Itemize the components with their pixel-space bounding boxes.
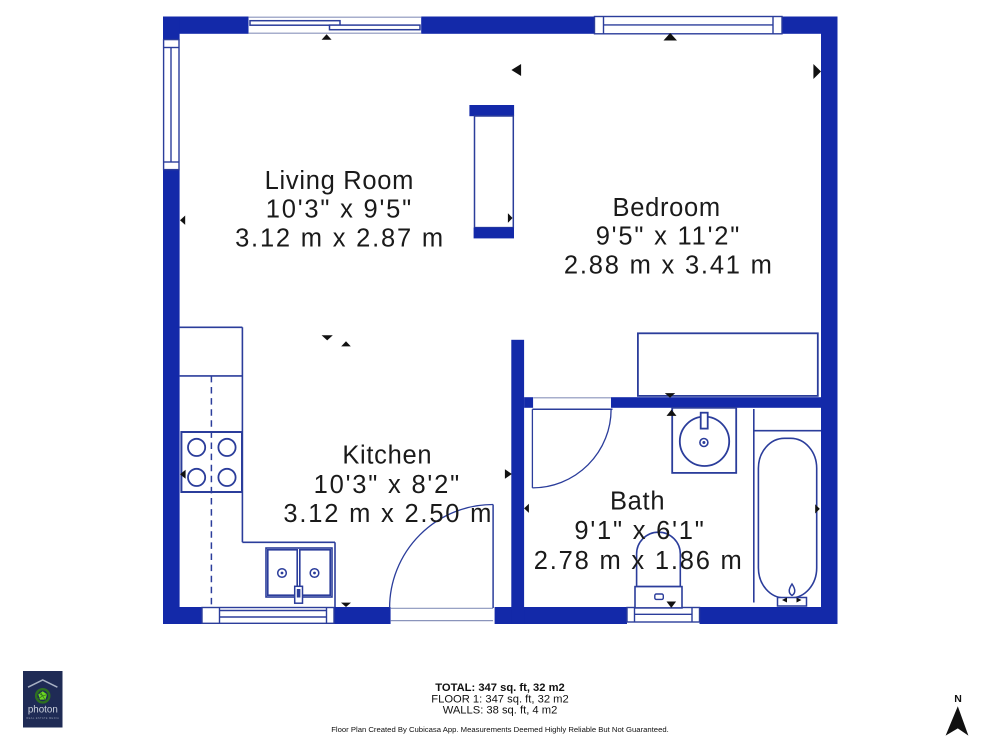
svg-text:WALLS: 38 sq. ft, 4 m2: WALLS: 38 sq. ft, 4 m2 — [443, 705, 558, 717]
svg-text:Bedroom: Bedroom — [613, 194, 721, 222]
svg-text:photon: photon — [28, 705, 58, 716]
svg-text:9'1" x 6'1": 9'1" x 6'1" — [574, 517, 705, 545]
svg-text:3.12 m x 2.87 m: 3.12 m x 2.87 m — [235, 224, 445, 252]
svg-text:Kitchen: Kitchen — [342, 441, 432, 469]
svg-text:Bath: Bath — [610, 488, 665, 516]
svg-text:10'3" x 9'5": 10'3" x 9'5" — [266, 196, 413, 224]
svg-text:REAL ESTATE MEDIA: REAL ESTATE MEDIA — [26, 716, 59, 720]
svg-text:Living Room: Living Room — [265, 167, 414, 195]
svg-text:9'5" x 11'2": 9'5" x 11'2" — [596, 223, 741, 251]
svg-text:2.78 m x 1.86 m: 2.78 m x 1.86 m — [534, 547, 744, 575]
svg-text:10'3" x 8'2": 10'3" x 8'2" — [314, 471, 461, 499]
svg-text:2.88 m x 3.41 m: 2.88 m x 3.41 m — [564, 251, 774, 279]
svg-text:N: N — [954, 693, 962, 705]
svg-text:TOTAL: 347 sq. ft, 32 m2: TOTAL: 347 sq. ft, 32 m2 — [435, 682, 565, 694]
svg-text:Floor Plan Created By Cubicasa: Floor Plan Created By Cubicasa App. Meas… — [331, 725, 669, 734]
svg-text:3.12 m x 2.50 m: 3.12 m x 2.50 m — [283, 500, 493, 528]
svg-text:FLOOR 1: 347 sq. ft, 32 m2: FLOOR 1: 347 sq. ft, 32 m2 — [431, 693, 568, 705]
